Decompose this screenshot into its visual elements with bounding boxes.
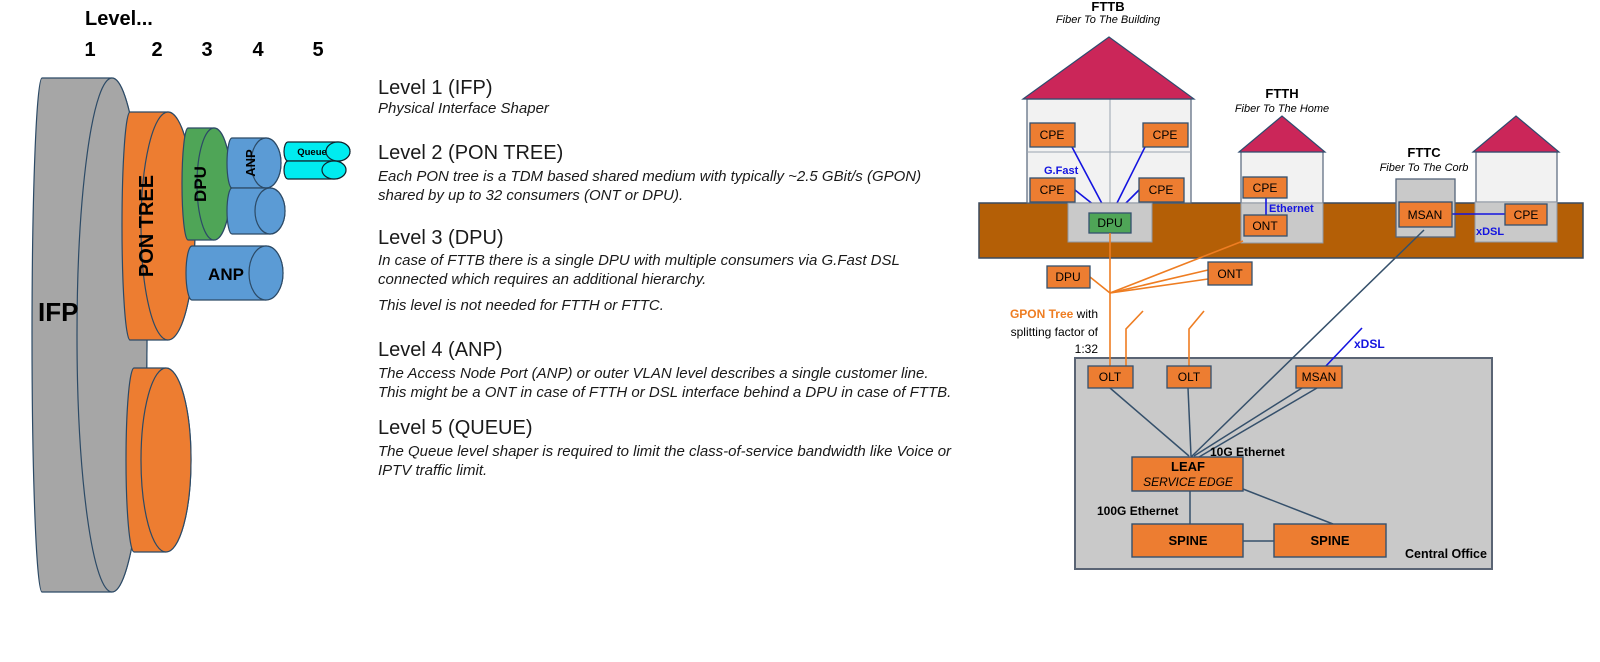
olt-label: OLT [1178,370,1201,384]
ftth-title: FTTH [1265,86,1298,101]
level-header-title: Level... [85,8,153,30]
diagram-stage: Level... 1 2 3 4 5 [0,0,1600,657]
dpu-cylinder-label: DPU [191,166,210,202]
cpe-label: CPE [1040,128,1065,142]
cpe-label: CPE [1040,183,1065,197]
level-number-3: 3 [201,39,212,61]
ethernet-label: Ethernet [1269,203,1314,215]
msan-label: MSAN [1408,208,1443,222]
msan-label: MSAN [1302,370,1337,384]
level-5-line: The Queue level shaper is required to li… [378,443,951,460]
cpe-label: CPE [1253,181,1278,195]
level-number-2: 2 [151,39,162,61]
underground-nodes: DPU ONT GPON Tree with splitting factor … [1010,262,1385,356]
level-2-line: shared by up to 32 consumers (ONT or DPU… [378,187,683,204]
cpe-label: CPE [1153,128,1178,142]
level-4-heading: Level 4 (ANP) [378,339,503,362]
ftth-subtitle: Fiber To The Home [1235,103,1329,115]
leaf-label: LEAF [1171,459,1205,474]
level-3-line: In case of FTTB there is a single DPU wi… [378,252,900,269]
gpon-annotation-bold: GPON Tree [1010,307,1074,321]
spine-label: SPINE [1168,533,1207,548]
dpu-label: DPU [1097,216,1122,230]
fttc-subtitle: Fiber To The Corb [1380,162,1469,174]
level-4-line: The Access Node Port (ANP) or outer VLAN… [378,365,929,382]
fttc-title: FTTC [1407,145,1441,160]
level-1-line: Physical Interface Shaper [378,100,549,117]
anp-lower-label: ANP [208,265,244,284]
spine-label: SPINE [1310,533,1349,548]
dpu-label: DPU [1055,270,1080,284]
level-number-1: 1 [84,39,95,61]
service-edge-label: SERVICE EDGE [1143,475,1234,489]
pon-tree-cylinder-2 [126,368,191,552]
gfast-label: G.Fast [1044,165,1079,177]
fttb-roof [1023,37,1194,99]
level-5-line: IPTV traffic limit. [378,462,487,479]
anp-second-cylinder [227,188,285,234]
fttc-house-roof [1473,116,1559,152]
central-office-label: Central Office [1405,547,1487,561]
cpe-label: CPE [1514,208,1539,222]
anp-top-label: ANP [243,149,258,177]
level-4-line: This might be a ONT in case of FTTH or D… [378,384,951,401]
ont-label: ONT [1252,219,1278,233]
xdsl-label-bottom: xDSL [1354,337,1385,351]
level-3-line: connected which requires an additional h… [378,271,706,288]
level-header: Level... 1 2 3 4 5 [84,8,323,61]
level-2-heading: Level 2 (PON TREE) [378,142,563,165]
level-3-heading: Level 3 (DPU) [378,227,504,250]
level-5-heading: Level 5 (QUEUE) [378,417,533,440]
level-3-note: This level is not needed for FTTH or FTT… [378,297,664,314]
pon-tree-label: PON TREE [136,175,158,277]
fttb-subtitle: Fiber To The Building [1056,14,1161,26]
ftth-roof [1239,116,1325,152]
gpon-annotation-line2: splitting factor of [1011,325,1099,339]
level-number-5: 5 [312,39,323,61]
gpon-annotation-line1: GPON Tree with [1010,307,1098,321]
ftth-house: FTTH Fiber To The Home CPE ONT Ethernet [1235,86,1329,243]
level-descriptions: Level 1 (IFP) Physical Interface Shaper … [378,0,978,657]
fttc-house-body [1476,152,1557,202]
hundred-g-ethernet-label: 100G Ethernet [1097,504,1178,518]
gpon-annotation-line3: 1:32 [1075,342,1099,356]
level-2-line: Each PON tree is a TDM based shared medi… [378,168,921,185]
fttb-title: FTTB [1091,0,1124,14]
xdsl-label-top: xDSL [1476,226,1504,238]
gpon-annotation-rest: with [1073,307,1098,321]
level-number-4: 4 [252,39,264,61]
queue-label: Queue [297,147,327,158]
cpe-label: CPE [1149,183,1174,197]
ifp-label: IFP [38,297,78,327]
olt-label: OLT [1099,370,1122,384]
level-1-heading: Level 1 (IFP) [378,77,492,100]
ont-label: ONT [1217,267,1243,281]
ten-g-ethernet-label: 10G Ethernet [1210,445,1285,459]
